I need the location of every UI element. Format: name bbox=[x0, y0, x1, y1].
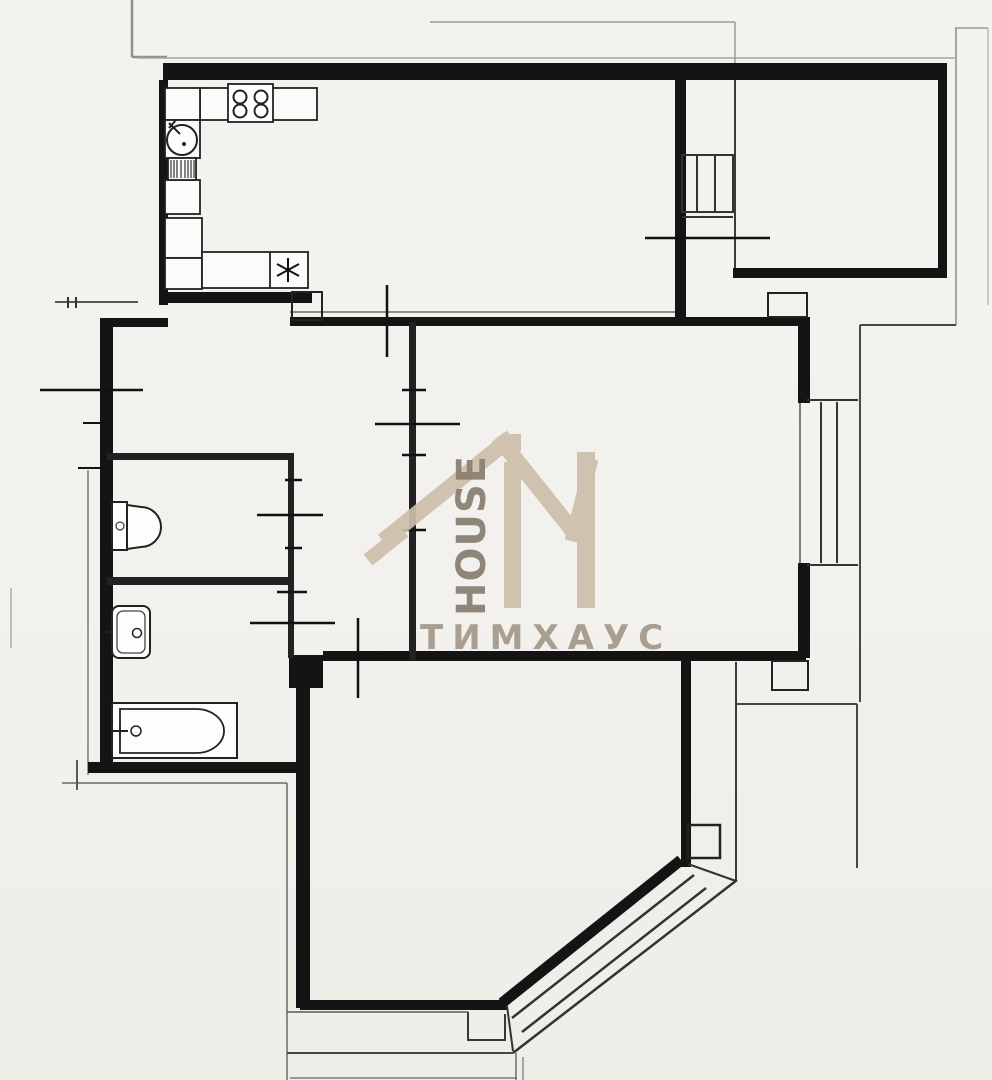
piers bbox=[292, 292, 808, 858]
outer-face-lines bbox=[55, 63, 956, 1080]
chamfer-wall bbox=[502, 860, 681, 1003]
floorplan-drawing bbox=[0, 0, 992, 1080]
niche-window bbox=[688, 825, 720, 858]
walls-partition bbox=[107, 322, 416, 660]
pilaster-bottom bbox=[772, 661, 808, 690]
kitchen-area bbox=[165, 84, 317, 289]
walls-thick bbox=[88, 63, 947, 1010]
washbasin-icon bbox=[106, 606, 150, 658]
toilet-icon bbox=[112, 502, 161, 550]
ladder-icon bbox=[682, 155, 733, 217]
stove-icon bbox=[228, 84, 273, 122]
stairs-icon bbox=[507, 864, 737, 1053]
kitchen-counter-bottom bbox=[202, 252, 308, 288]
pilaster-top bbox=[768, 293, 807, 317]
floorplan-scan-page: HOUSE ТИМХАУС bbox=[0, 0, 992, 1080]
bathroom-area bbox=[106, 502, 237, 758]
window-icon bbox=[800, 400, 858, 565]
bathtub-icon bbox=[112, 703, 237, 758]
